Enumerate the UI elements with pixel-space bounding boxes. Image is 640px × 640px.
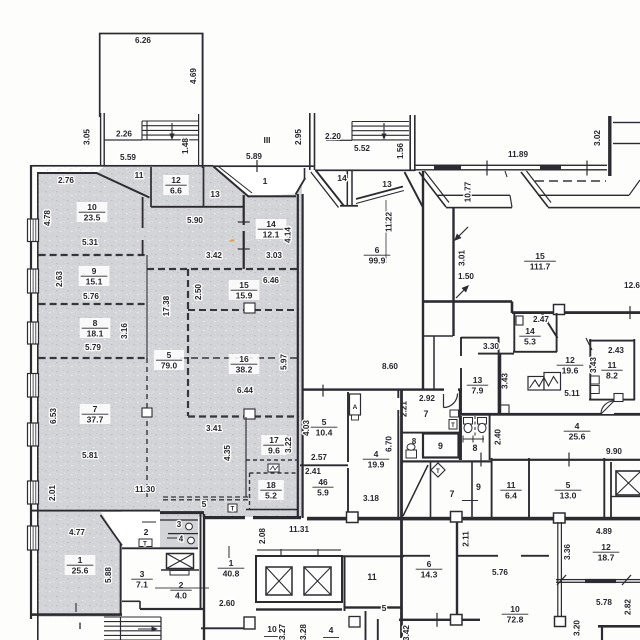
svg-text:6.44: 6.44 — [237, 386, 253, 395]
svg-text:4: 4 — [179, 535, 184, 544]
svg-text:8.2: 8.2 — [606, 371, 618, 381]
svg-text:5.76: 5.76 — [492, 568, 508, 577]
svg-text:4.35: 4.35 — [223, 445, 232, 461]
svg-text:5.11: 5.11 — [564, 389, 580, 398]
svg-text:3.41: 3.41 — [206, 424, 222, 433]
svg-text:5.97: 5.97 — [280, 354, 289, 370]
svg-text:12.1: 12.1 — [263, 230, 280, 240]
svg-text:13: 13 — [210, 189, 220, 199]
svg-text:10: 10 — [510, 604, 520, 614]
svg-text:5: 5 — [382, 603, 387, 613]
svg-text:11: 11 — [506, 480, 515, 490]
svg-text:5.3: 5.3 — [524, 337, 536, 347]
svg-text:19.6: 19.6 — [562, 366, 579, 376]
svg-text:2.76: 2.76 — [58, 176, 74, 185]
svg-text:1.56: 1.56 — [396, 143, 405, 159]
svg-text:6.4: 6.4 — [505, 491, 517, 501]
svg-text:4.77: 4.77 — [69, 528, 85, 537]
svg-text:5: 5 — [322, 417, 327, 427]
svg-text:7.1: 7.1 — [136, 580, 148, 590]
svg-text:3.43: 3.43 — [589, 357, 598, 373]
svg-text:4.89: 4.89 — [596, 527, 612, 536]
svg-text:6.26: 6.26 — [135, 36, 151, 45]
svg-text:1.50: 1.50 — [458, 272, 474, 281]
svg-text:8.60: 8.60 — [382, 362, 398, 371]
svg-text:6: 6 — [375, 245, 380, 255]
svg-text:7: 7 — [93, 404, 98, 414]
svg-text:99.9: 99.9 — [369, 256, 386, 266]
svg-text:2.60: 2.60 — [219, 599, 235, 608]
svg-text:12: 12 — [565, 355, 575, 365]
svg-text:7.9: 7.9 — [472, 386, 484, 396]
svg-text:12.6: 12.6 — [624, 281, 640, 290]
svg-text:2.11: 2.11 — [462, 531, 471, 547]
svg-text:2.43: 2.43 — [608, 346, 624, 355]
svg-text:15.9: 15.9 — [236, 291, 253, 301]
svg-text:38.2: 38.2 — [236, 365, 253, 375]
svg-text:T: T — [451, 423, 455, 429]
svg-text:5.76: 5.76 — [83, 292, 99, 301]
svg-text:2: 2 — [144, 527, 149, 537]
svg-text:2.95: 2.95 — [294, 129, 303, 145]
svg-text:2.40: 2.40 — [494, 429, 503, 445]
svg-text:3.18: 3.18 — [363, 494, 379, 503]
svg-text:3.28: 3.28 — [299, 624, 308, 640]
svg-text:5.52: 5.52 — [354, 144, 370, 153]
svg-text:15: 15 — [535, 251, 545, 261]
svg-text:I: I — [79, 621, 82, 631]
svg-text:3.20: 3.20 — [573, 620, 582, 636]
svg-text:5.81: 5.81 — [82, 451, 98, 460]
svg-text:5.9: 5.9 — [317, 488, 329, 498]
svg-text:72.8: 72.8 — [507, 615, 524, 625]
svg-text:18.7: 18.7 — [598, 553, 615, 563]
svg-text:4: 4 — [575, 421, 580, 431]
svg-text:2.92: 2.92 — [419, 394, 435, 403]
svg-text:11: 11 — [134, 170, 143, 180]
svg-text:13: 13 — [473, 375, 483, 385]
svg-text:2.82: 2.82 — [624, 599, 633, 615]
svg-text:5: 5 — [167, 350, 172, 360]
svg-text:2: 2 — [179, 580, 184, 590]
svg-text:5.31: 5.31 — [82, 238, 98, 247]
svg-text:10.77: 10.77 — [464, 181, 473, 202]
svg-text:16: 16 — [239, 354, 249, 364]
svg-text:3.03: 3.03 — [266, 251, 282, 260]
svg-text:T: T — [143, 542, 147, 548]
svg-text:9: 9 — [476, 482, 481, 492]
svg-text:1.48: 1.48 — [181, 138, 190, 154]
svg-text:46: 46 — [318, 477, 328, 487]
svg-text:12: 12 — [601, 542, 611, 552]
svg-text:17: 17 — [269, 435, 279, 445]
svg-text:A: A — [353, 404, 358, 411]
svg-text:1: 1 — [78, 555, 83, 565]
svg-text:6.70: 6.70 — [385, 436, 394, 452]
svg-text:13: 13 — [382, 179, 392, 189]
svg-text:3.36: 3.36 — [563, 544, 572, 560]
svg-text:11: 11 — [367, 572, 376, 582]
svg-text:5: 5 — [202, 499, 207, 509]
svg-text:14: 14 — [337, 173, 347, 183]
svg-text:3.27: 3.27 — [278, 624, 287, 640]
svg-text:4.78: 4.78 — [43, 210, 52, 226]
svg-text:1: 1 — [263, 176, 268, 186]
svg-text:19.9: 19.9 — [368, 460, 385, 470]
svg-text:6: 6 — [427, 559, 432, 569]
svg-text:15.1: 15.1 — [86, 277, 103, 287]
svg-text:4.0: 4.0 — [175, 591, 187, 601]
svg-text:5.90: 5.90 — [187, 216, 203, 225]
svg-text:3.42: 3.42 — [206, 251, 222, 260]
svg-text:2.47: 2.47 — [533, 315, 549, 324]
svg-text:4: 4 — [374, 449, 379, 459]
svg-text:18.1: 18.1 — [87, 329, 104, 339]
svg-text:4.69: 4.69 — [189, 68, 198, 84]
svg-text:5: 5 — [566, 480, 571, 490]
svg-text:9.90: 9.90 — [606, 447, 622, 456]
svg-text:6.46: 6.46 — [263, 276, 279, 285]
svg-text:7: 7 — [424, 409, 429, 419]
svg-text:40.8: 40.8 — [223, 569, 240, 579]
svg-text:T: T — [231, 507, 235, 513]
svg-text:2.26: 2.26 — [116, 130, 132, 139]
svg-text:25.6: 25.6 — [569, 432, 586, 442]
svg-text:2.63: 2.63 — [55, 271, 64, 287]
svg-text:4.14: 4.14 — [284, 227, 293, 243]
svg-text:3.16: 3.16 — [120, 323, 129, 339]
svg-text:5.88: 5.88 — [104, 567, 113, 583]
svg-text:III: III — [263, 135, 270, 145]
svg-text:25.6: 25.6 — [72, 566, 89, 576]
svg-text:4.03: 4.03 — [302, 420, 311, 436]
svg-text:11.30: 11.30 — [135, 485, 155, 494]
svg-text:1: 1 — [229, 558, 234, 568]
svg-text:T: T — [436, 469, 440, 475]
svg-text:3.43: 3.43 — [501, 373, 510, 389]
svg-text:11: 11 — [607, 360, 616, 370]
svg-text:37.7: 37.7 — [87, 415, 104, 425]
svg-text:2.50: 2.50 — [194, 284, 203, 300]
svg-text:3.42: 3.42 — [402, 625, 411, 640]
svg-text:9: 9 — [92, 266, 97, 276]
svg-text:2.41: 2.41 — [305, 467, 321, 476]
svg-text:12: 12 — [171, 175, 181, 185]
svg-text:13.0: 13.0 — [560, 491, 577, 501]
svg-text:14: 14 — [525, 326, 535, 336]
svg-text:4: 4 — [329, 625, 334, 635]
svg-text:5.79: 5.79 — [85, 343, 101, 352]
svg-text:2.08: 2.08 — [258, 528, 267, 544]
svg-text:6.6: 6.6 — [170, 186, 182, 196]
svg-text:3.30: 3.30 — [483, 342, 499, 351]
svg-text:14.3: 14.3 — [421, 570, 438, 580]
svg-text:17.38: 17.38 — [162, 295, 171, 316]
svg-text:18: 18 — [266, 480, 276, 490]
svg-text:6.53: 6.53 — [49, 408, 58, 424]
svg-text:3: 3 — [177, 520, 182, 529]
svg-text:10: 10 — [87, 202, 97, 212]
svg-text:14: 14 — [266, 219, 276, 229]
svg-text:5.59: 5.59 — [120, 153, 136, 162]
svg-text:23.5: 23.5 — [84, 213, 101, 223]
svg-text:9: 9 — [438, 441, 443, 451]
svg-text:3.22: 3.22 — [284, 437, 293, 453]
svg-text:10.4: 10.4 — [316, 428, 333, 438]
svg-text:9.6: 9.6 — [268, 446, 280, 456]
svg-text:2.57: 2.57 — [311, 453, 327, 462]
svg-text:8: 8 — [473, 443, 478, 453]
svg-text:3.02: 3.02 — [593, 130, 602, 146]
svg-text:3.05: 3.05 — [83, 129, 92, 145]
svg-text:11.22: 11.22 — [385, 212, 394, 232]
svg-text:11.89: 11.89 — [508, 150, 528, 159]
svg-text:10: 10 — [267, 624, 277, 634]
svg-text:2.20: 2.20 — [325, 132, 341, 141]
svg-text:7: 7 — [450, 489, 455, 499]
svg-text:5.89: 5.89 — [246, 152, 262, 161]
svg-text:3.01: 3.01 — [458, 250, 467, 266]
svg-text:2.01: 2.01 — [48, 485, 57, 501]
svg-text:15: 15 — [239, 280, 249, 290]
svg-text:79.0: 79.0 — [161, 361, 178, 371]
svg-text:5.78: 5.78 — [596, 598, 612, 607]
svg-text:11.31: 11.31 — [289, 525, 309, 534]
svg-text:111.7: 111.7 — [530, 262, 551, 272]
svg-text:8: 8 — [93, 318, 98, 328]
svg-text:3: 3 — [140, 569, 145, 579]
svg-text:5.2: 5.2 — [265, 491, 277, 501]
